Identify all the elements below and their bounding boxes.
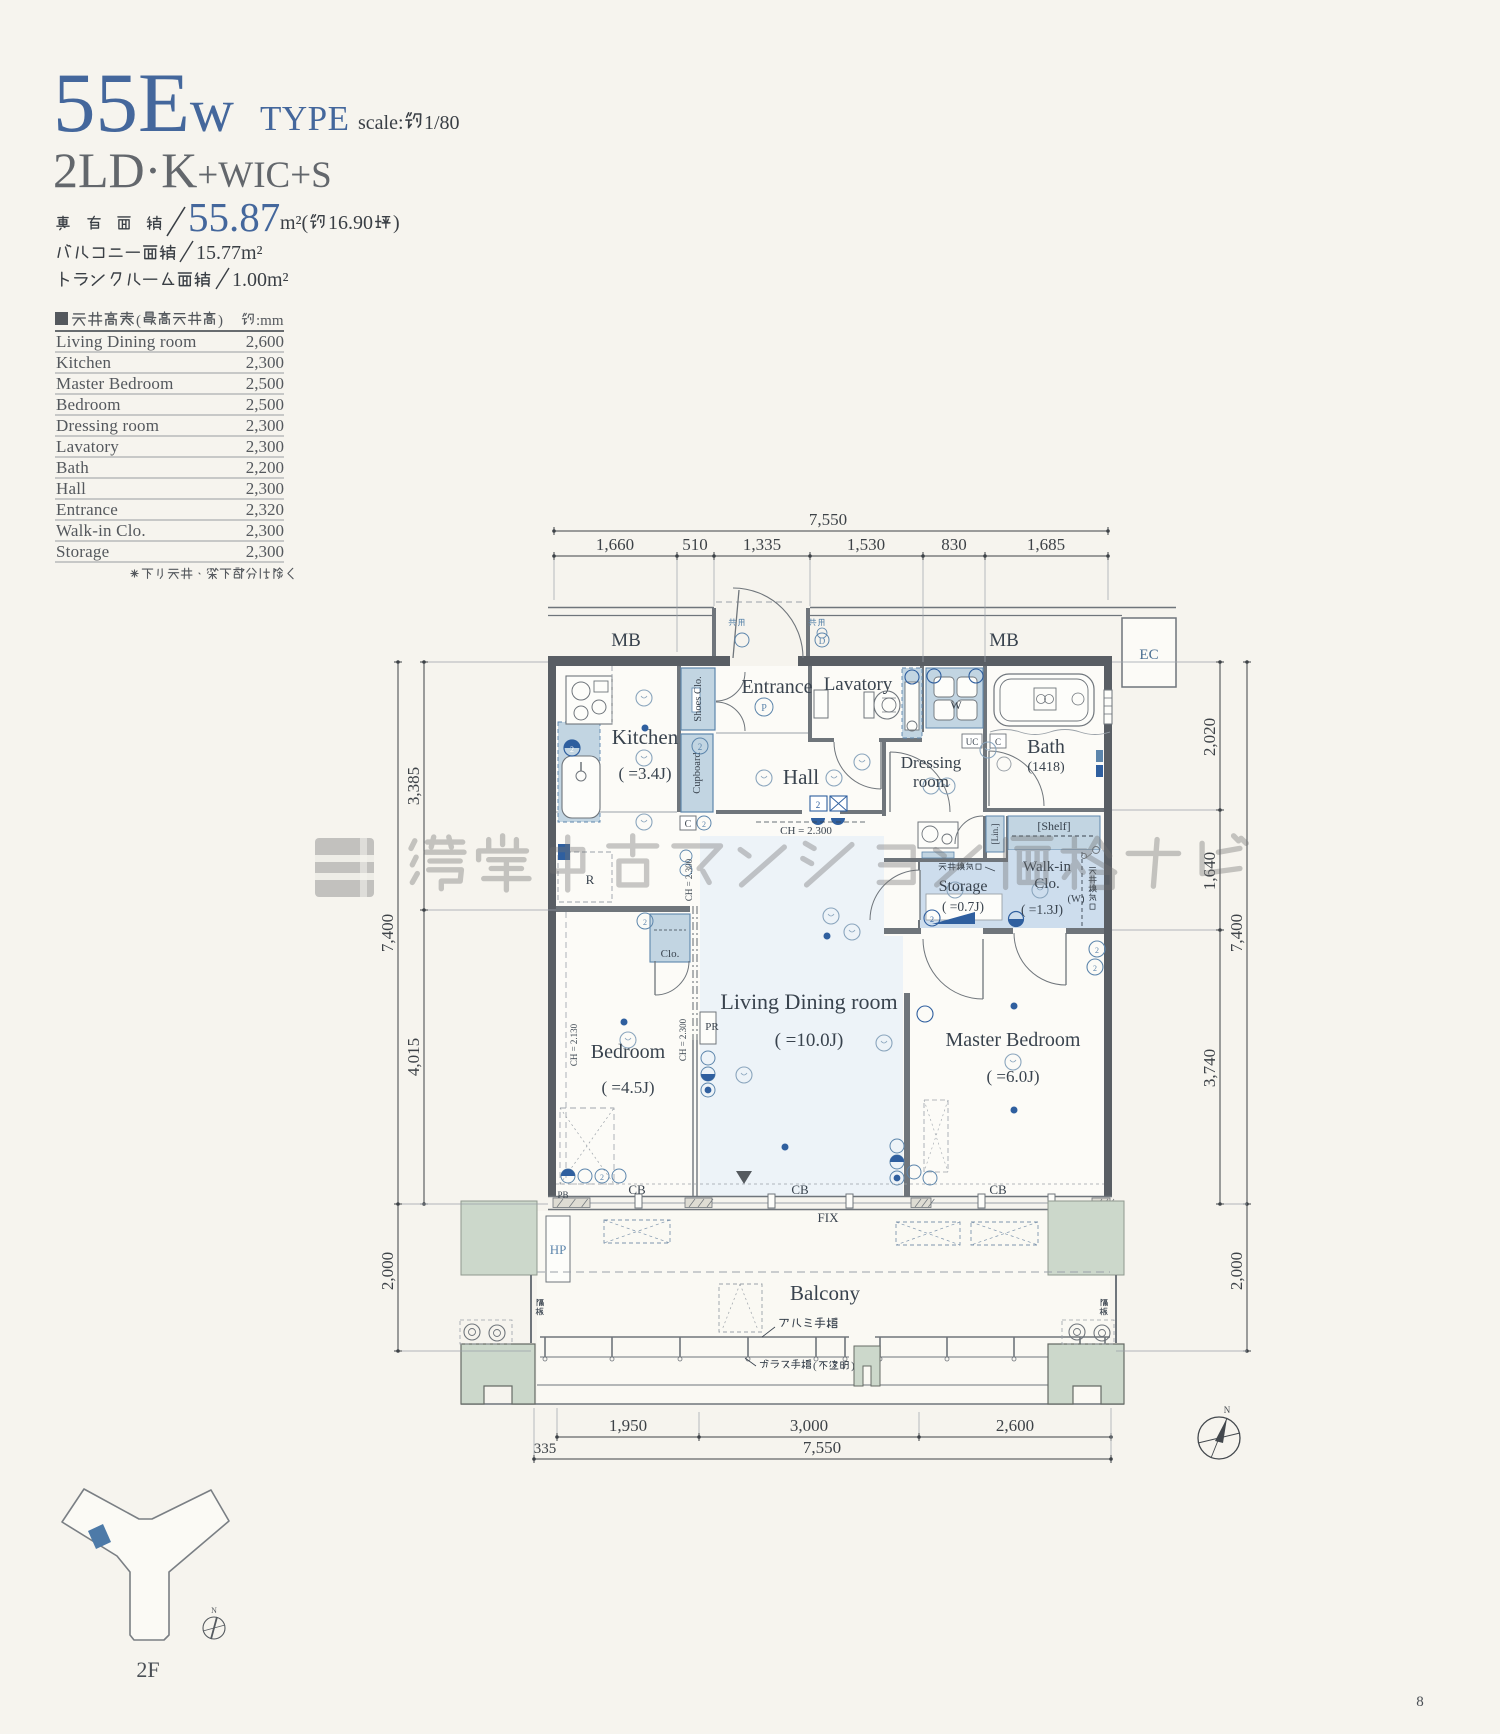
svg-text:2: 2 — [1093, 964, 1097, 973]
svg-text::mm: :mm — [256, 313, 284, 329]
svg-text:16.90: 16.90 — [328, 212, 373, 234]
svg-text:(1418): (1418) — [1027, 760, 1065, 775]
svg-text:Bedroom: Bedroom — [56, 395, 121, 414]
svg-text:3,740: 3,740 — [1200, 1049, 1219, 1087]
svg-text:MB: MB — [611, 630, 641, 651]
svg-text:2,300: 2,300 — [246, 542, 284, 561]
svg-text:( =10.0J): ( =10.0J) — [775, 1030, 844, 1051]
svg-text:2,500: 2,500 — [246, 374, 284, 393]
svg-text:2,000: 2,000 — [378, 1252, 397, 1290]
svg-text:7,400: 7,400 — [378, 914, 397, 952]
svg-text:1,950: 1,950 — [609, 1416, 647, 1435]
svg-text:): ) — [393, 212, 400, 234]
svg-text:2: 2 — [702, 820, 706, 829]
svg-text:2: 2 — [930, 915, 934, 924]
svg-text:Living Dining room: Living Dining room — [720, 989, 897, 1014]
svg-text:2: 2 — [570, 745, 574, 754]
svg-text:Bedroom: Bedroom — [591, 1041, 666, 1063]
svg-text:( =1.3J): ( =1.3J) — [1021, 902, 1063, 917]
svg-text:2F: 2F — [136, 1657, 159, 1682]
svg-text:CH = 2.300: CH = 2.300 — [684, 858, 694, 901]
svg-text:2,500: 2,500 — [246, 395, 284, 414]
svg-text:2,300: 2,300 — [246, 521, 284, 540]
svg-text:m²(: m²( — [280, 212, 309, 234]
svg-text:(: ( — [136, 313, 141, 329]
svg-text:Shoes Clo.: Shoes Clo. — [693, 676, 704, 722]
svg-text:CH = 2.300: CH = 2.300 — [780, 825, 832, 837]
svg-text:1,530: 1,530 — [847, 535, 885, 554]
svg-text:335: 335 — [534, 1441, 557, 1457]
svg-text:2,320: 2,320 — [246, 500, 284, 519]
svg-text:( =0.7J): ( =0.7J) — [942, 899, 984, 914]
svg-text:CB: CB — [989, 1182, 1007, 1197]
svg-text:R: R — [586, 872, 595, 887]
svg-text:FIX: FIX — [818, 1210, 840, 1225]
svg-text:1,660: 1,660 — [596, 535, 634, 554]
svg-text:1,335: 1,335 — [743, 535, 781, 554]
svg-text:P: P — [761, 703, 767, 714]
svg-text:2,000: 2,000 — [1227, 1252, 1246, 1290]
svg-text:3,000: 3,000 — [790, 1416, 828, 1435]
svg-text:7,400: 7,400 — [1227, 914, 1246, 952]
svg-text:Balcony: Balcony — [790, 1281, 860, 1305]
svg-text:): ) — [218, 313, 223, 329]
svg-text:Walk-in Clo.: Walk-in Clo. — [56, 521, 146, 540]
svg-text:Master Bedroom: Master Bedroom — [946, 1029, 1081, 1051]
svg-text:CB: CB — [791, 1182, 809, 1197]
svg-text:1.00m²: 1.00m² — [232, 269, 289, 291]
svg-text:Lavatory: Lavatory — [824, 674, 893, 695]
svg-text:PR: PR — [705, 1021, 719, 1033]
svg-text:PB: PB — [557, 1190, 568, 1200]
svg-text:CH = 2.130: CH = 2.130 — [569, 1023, 579, 1066]
svg-text:Hall: Hall — [783, 765, 819, 789]
svg-text:Entrance: Entrance — [741, 676, 812, 698]
svg-text:2,300: 2,300 — [246, 353, 284, 372]
svg-text:2,300: 2,300 — [246, 437, 284, 456]
svg-text:830: 830 — [941, 535, 967, 554]
svg-text:1/80: 1/80 — [424, 112, 460, 134]
svg-text:4,015: 4,015 — [404, 1038, 423, 1076]
svg-text:MB: MB — [989, 630, 1019, 651]
svg-text:Bath: Bath — [56, 458, 89, 477]
svg-text:[Shelf]: [Shelf] — [1037, 819, 1070, 833]
svg-text:Dressing: Dressing — [901, 753, 962, 772]
svg-text:Cupboard: Cupboard — [692, 752, 703, 794]
svg-text:3,385: 3,385 — [404, 767, 423, 805]
svg-text:510: 510 — [682, 535, 708, 554]
svg-text:CB: CB — [628, 1182, 646, 1197]
svg-text:N: N — [211, 1606, 217, 1615]
svg-text:2,300: 2,300 — [246, 479, 284, 498]
svg-text:2: 2 — [1095, 946, 1099, 955]
svg-text:Kitchen: Kitchen — [56, 353, 112, 372]
svg-text:[Lin.]: [Lin.] — [990, 824, 1000, 845]
svg-text:2,600: 2,600 — [246, 332, 284, 351]
svg-text:(W): (W) — [1068, 894, 1085, 905]
svg-text:8: 8 — [1416, 1694, 1424, 1710]
svg-text:( =6.0J): ( =6.0J) — [986, 1067, 1039, 1086]
svg-text:EC: EC — [1139, 647, 1158, 663]
svg-text:Entrance: Entrance — [56, 500, 118, 519]
svg-text:C: C — [995, 737, 1001, 747]
svg-text:Bath: Bath — [1027, 736, 1065, 758]
svg-text:N: N — [1224, 1405, 1231, 1415]
svg-text:UC: UC — [966, 737, 979, 747]
svg-text:2: 2 — [816, 800, 821, 810]
svg-text:Dressing room: Dressing room — [56, 416, 159, 435]
svg-text:( =3.4J): ( =3.4J) — [618, 764, 671, 783]
svg-text:2,200: 2,200 — [246, 458, 284, 477]
svg-text:2: 2 — [643, 918, 647, 927]
svg-text:(: ( — [813, 1360, 817, 1372]
svg-text:Master Bedroom: Master Bedroom — [56, 374, 174, 393]
svg-text:15.77m²: 15.77m² — [196, 242, 263, 264]
svg-text:2: 2 — [698, 742, 703, 752]
svg-text:2,020: 2,020 — [1200, 718, 1219, 756]
svg-text:HP: HP — [550, 1242, 567, 1257]
svg-text:Lavatory: Lavatory — [56, 437, 119, 456]
svg-text:CH = 2.300: CH = 2.300 — [678, 1018, 688, 1061]
svg-text:Kitchen: Kitchen — [612, 725, 679, 749]
svg-text:55.87: 55.87 — [188, 194, 280, 240]
svg-text:7,550: 7,550 — [809, 510, 847, 529]
svg-text:Hall: Hall — [56, 479, 86, 498]
svg-text:1,685: 1,685 — [1027, 535, 1065, 554]
svg-text:W: W — [950, 698, 962, 712]
svg-text:room: room — [913, 772, 949, 791]
svg-text:C: C — [685, 819, 692, 830]
svg-text:2,600: 2,600 — [996, 1416, 1034, 1435]
svg-text:7,550: 7,550 — [803, 1438, 841, 1457]
svg-text:Clo.: Clo. — [661, 948, 680, 960]
svg-text:2,300: 2,300 — [246, 416, 284, 435]
svg-text:Storage: Storage — [939, 878, 988, 895]
svg-text:( =4.5J): ( =4.5J) — [601, 1078, 654, 1097]
svg-text:Living Dining room: Living Dining room — [56, 332, 197, 351]
svg-text:2: 2 — [600, 1173, 604, 1182]
svg-text:scale:: scale: — [358, 112, 404, 134]
svg-text:Storage: Storage — [56, 542, 109, 561]
svg-text:TYPE: TYPE — [260, 99, 350, 138]
